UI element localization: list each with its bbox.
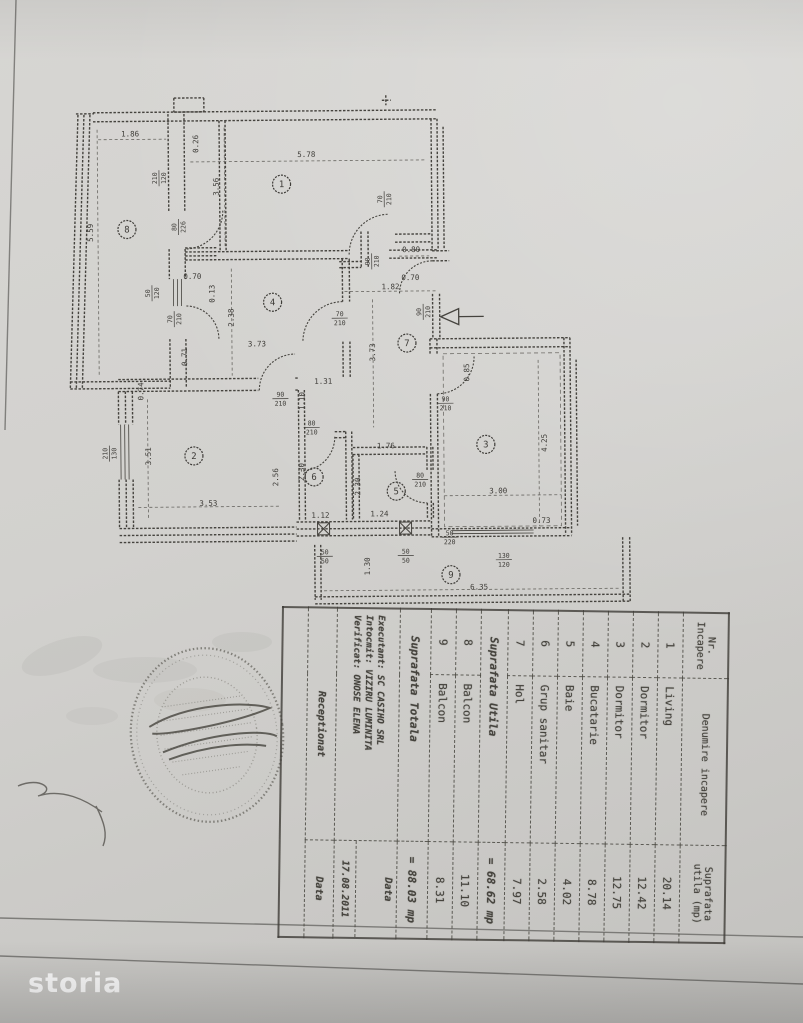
dim-label: 1.86 [121, 129, 140, 138]
svg-text:210: 210 [275, 400, 287, 408]
table-row: 4Bucatarie8.78 [579, 611, 609, 941]
room-number: 4 [264, 293, 282, 311]
door-spec: 5050 [398, 548, 414, 565]
svg-text:4: 4 [270, 298, 276, 308]
svg-text:210: 210 [151, 172, 159, 184]
executant-row: Executant: SC CASIHO SRLIntocmit: VIZIRU… [333, 608, 401, 939]
svg-text:210: 210 [414, 480, 426, 488]
cell-nr: 9 [431, 609, 457, 675]
door-spec: 50220 [442, 529, 458, 546]
door-spec: 90210 [272, 391, 288, 408]
svg-text:50: 50 [446, 529, 454, 537]
area-table: Nr.IncapereDenumire incapereSuprafatauti… [277, 606, 730, 944]
receptionat-label: Receptionat [305, 607, 337, 840]
dim-label: 1.31 [314, 377, 332, 386]
data-label: Data [379, 841, 396, 937]
cell-name: Grup sanitar [530, 676, 557, 843]
door-spec: 90210 [415, 304, 432, 320]
dim-label: 2.38 [227, 308, 236, 327]
door-spec: 90210 [364, 253, 381, 269]
room-number: 7 [398, 334, 416, 352]
door-spec: 80210 [304, 419, 320, 436]
cell-area: 8.31 [427, 842, 453, 940]
svg-text:8: 8 [124, 225, 130, 235]
dim-label: 1.10 [297, 391, 306, 410]
receptionat-row: ReceptionatData [304, 607, 338, 937]
svg-text:2: 2 [191, 452, 197, 462]
svg-text:210: 210 [424, 306, 432, 318]
date-value: 17.08.2011 [333, 841, 356, 937]
door-spec: 80226 [170, 219, 187, 235]
cell-name: Dormitor [605, 677, 632, 844]
door-spec: 210130 [101, 446, 118, 462]
empty-row [278, 607, 308, 937]
cell-nr: 6 [533, 610, 559, 676]
pen-signature [18, 783, 105, 847]
cell-nr: 2 [633, 612, 659, 678]
pencil-smudges [17, 628, 272, 725]
dim-label: 0.70 [401, 273, 420, 282]
cell-area: 12.75 [604, 844, 630, 942]
svg-text:210: 210 [101, 448, 109, 460]
data-cell: Data17.08.2011 [333, 840, 397, 938]
total-row: Suprafata Totala= 88.03 mp [396, 609, 432, 939]
storia-watermark: storia [28, 968, 122, 999]
dim-label: 0.73 [532, 516, 550, 525]
room-number-badges: 123456789 [117, 173, 496, 586]
svg-text:70: 70 [166, 315, 174, 323]
door-spec: 70210 [166, 311, 183, 327]
dim-label: 6.35 [470, 582, 488, 591]
door-spec: 130120 [496, 552, 512, 569]
svg-text:3: 3 [483, 440, 489, 450]
cell-nr: 1 [658, 612, 684, 678]
cell-area: 20.14 [654, 845, 680, 943]
dim-label: 3.51 [144, 447, 153, 465]
svg-text:210: 210 [385, 193, 393, 205]
svg-text:90: 90 [276, 391, 284, 399]
floorplan: 5.783.561.865.590.260.800.701.820.700.13… [68, 93, 630, 606]
empty-cell [278, 607, 308, 937]
svg-text:210: 210 [306, 428, 318, 436]
cell-name: Bucatarie [580, 677, 607, 844]
dim-label: 1.30 [363, 557, 372, 576]
area-table-container: Nr.IncapereDenumire incapereSuprafatauti… [282, 606, 730, 930]
door-window-spec-labels: 9021090210702107021090210802108021090210… [99, 167, 512, 572]
room-number: 3 [477, 435, 495, 453]
door-spec: 50120 [144, 285, 161, 301]
dim-label: 3.56 [211, 177, 220, 196]
table-row: 7Hol7.97 [504, 610, 534, 940]
header-denumire: Denumire incapere [680, 678, 728, 846]
table-row: 6Grup sanitar2.58 [529, 610, 559, 940]
cell-area: 12.42 [629, 844, 655, 942]
table-row: 5Baie4.02 [554, 611, 584, 941]
cell-nr: 3 [608, 612, 634, 678]
door-spec: 70210 [376, 191, 393, 207]
cell-area: 11.10 [452, 842, 478, 940]
data-stack: Data17.08.2011 [333, 841, 396, 938]
dim-label: 5.59 [86, 224, 95, 242]
svg-text:6: 6 [311, 473, 317, 483]
svg-text:210: 210 [440, 404, 452, 412]
dim-label: 2.56 [271, 468, 280, 487]
room-number: 2 [185, 447, 203, 465]
svg-text:50: 50 [321, 557, 329, 565]
door-spec: 70210 [332, 310, 348, 327]
svg-text:120: 120 [160, 172, 168, 184]
cell-nr: 7 [508, 610, 534, 676]
room-number: 8 [118, 220, 136, 238]
svg-text:226: 226 [179, 221, 187, 233]
door-spec: 90210 [437, 395, 453, 412]
dim-label: 4.25 [540, 434, 549, 452]
dim-label: 1.82 [381, 282, 399, 291]
dim-label: 0.71 [180, 348, 189, 366]
cell-name: Balcon [453, 675, 480, 842]
svg-text:90: 90 [364, 257, 372, 265]
door-spec: 5050 [317, 548, 333, 565]
cell-name: Baie [555, 676, 582, 843]
dim-label: 0.13 [207, 285, 216, 303]
cell-name: Dormitor [630, 677, 657, 844]
svg-text:90: 90 [441, 395, 449, 403]
room-number: 1 [272, 175, 290, 193]
total-value: = 88.03 mp [396, 841, 428, 939]
svg-text:5: 5 [393, 487, 399, 497]
room-number: 9 [442, 566, 460, 584]
svg-text:50: 50 [144, 289, 152, 297]
svg-text:90: 90 [415, 308, 423, 316]
svg-text:50: 50 [402, 557, 410, 565]
cell-area: 2.58 [529, 843, 555, 941]
svg-text:9: 9 [448, 571, 454, 581]
svg-text:80: 80 [416, 471, 424, 479]
dimension-labels: 5.783.561.865.590.260.800.701.820.700.13… [85, 126, 551, 595]
dim-label: 3.73 [248, 339, 266, 348]
svg-text:80: 80 [308, 419, 316, 427]
dim-label: 0.74 [136, 382, 145, 401]
dim-label: 3.53 [199, 499, 217, 508]
dim-label: 1.76 [377, 441, 396, 450]
cell-name: Hol [505, 676, 532, 843]
walls [68, 93, 630, 606]
svg-text:120: 120 [153, 287, 161, 299]
svg-text:210: 210 [175, 313, 183, 325]
svg-text:220: 220 [444, 538, 456, 546]
svg-text:210: 210 [334, 319, 346, 327]
dim-label: 3.00 [489, 486, 508, 495]
dim-label: 5.78 [297, 150, 316, 159]
dim-label: 0.70 [183, 272, 202, 281]
dim-label: 1.12 [311, 511, 329, 520]
svg-text:80: 80 [170, 223, 178, 231]
table-row: 9Balcon8.31 [427, 609, 457, 939]
svg-text:70: 70 [336, 310, 344, 318]
cell-name: Living [655, 678, 682, 845]
cell-area: 8.78 [579, 844, 605, 942]
north-arrow-icon [441, 308, 484, 324]
table-header-row: Nr.IncapereDenumire incapereSuprafatauti… [679, 613, 729, 944]
table-row: 2Dormitor12.42 [629, 612, 659, 942]
door-arcs [185, 208, 476, 505]
cell-area: 7.97 [504, 843, 530, 941]
door-spec: 210120 [151, 170, 168, 186]
scanned-floorplan-sheet: 5.783.561.865.590.260.800.701.820.700.13… [0, 0, 803, 1023]
cell-nr: 5 [558, 611, 584, 677]
cell-nr: 4 [583, 611, 609, 677]
subtotal-label: Suprafata Utila [478, 610, 508, 843]
dim-label: 0.80 [402, 245, 421, 254]
subtotal-value: = 68.62 mp [477, 842, 505, 940]
svg-text:130: 130 [110, 448, 118, 460]
svg-text:120: 120 [498, 561, 510, 569]
svg-text:7: 7 [404, 339, 410, 349]
table-row: 3Dormitor12.75 [604, 612, 634, 942]
cell-nr: 8 [456, 609, 482, 675]
svg-text:210: 210 [373, 255, 381, 267]
subtotal-row: Suprafata Utila= 68.62 mp [477, 610, 509, 940]
header-suprafata: Suprafatautila (mp) [679, 845, 726, 943]
receptionat-data-label: Data [304, 840, 334, 938]
door-spec: 80210 [412, 471, 428, 488]
executant-block: Executant: SC CASIHO SRLIntocmit: VIZIRU… [334, 608, 400, 841]
svg-text:50: 50 [402, 548, 410, 556]
table-row: 1Living20.14 [654, 612, 684, 942]
dim-label: 0.85 [462, 363, 471, 381]
header-nr: Nr.Incapere [683, 613, 729, 679]
svg-text:50: 50 [321, 548, 329, 556]
dim-label: 2.30 [353, 477, 362, 496]
area-table-rotated: Nr.IncapereDenumire incapereSuprafatauti… [282, 606, 730, 928]
svg-text:1: 1 [279, 180, 285, 190]
svg-text:70: 70 [376, 195, 384, 203]
total-label: Suprafata Totala [397, 609, 431, 842]
dim-label: 0.26 [191, 134, 200, 153]
cell-area: 4.02 [554, 843, 580, 941]
dim-label: 1.24 [370, 509, 389, 518]
cell-name: Balcon [428, 675, 455, 842]
svg-text:130: 130 [498, 552, 510, 560]
table-row: 8Balcon11.10 [452, 609, 482, 939]
dim-label: 3.73 [368, 343, 377, 361]
